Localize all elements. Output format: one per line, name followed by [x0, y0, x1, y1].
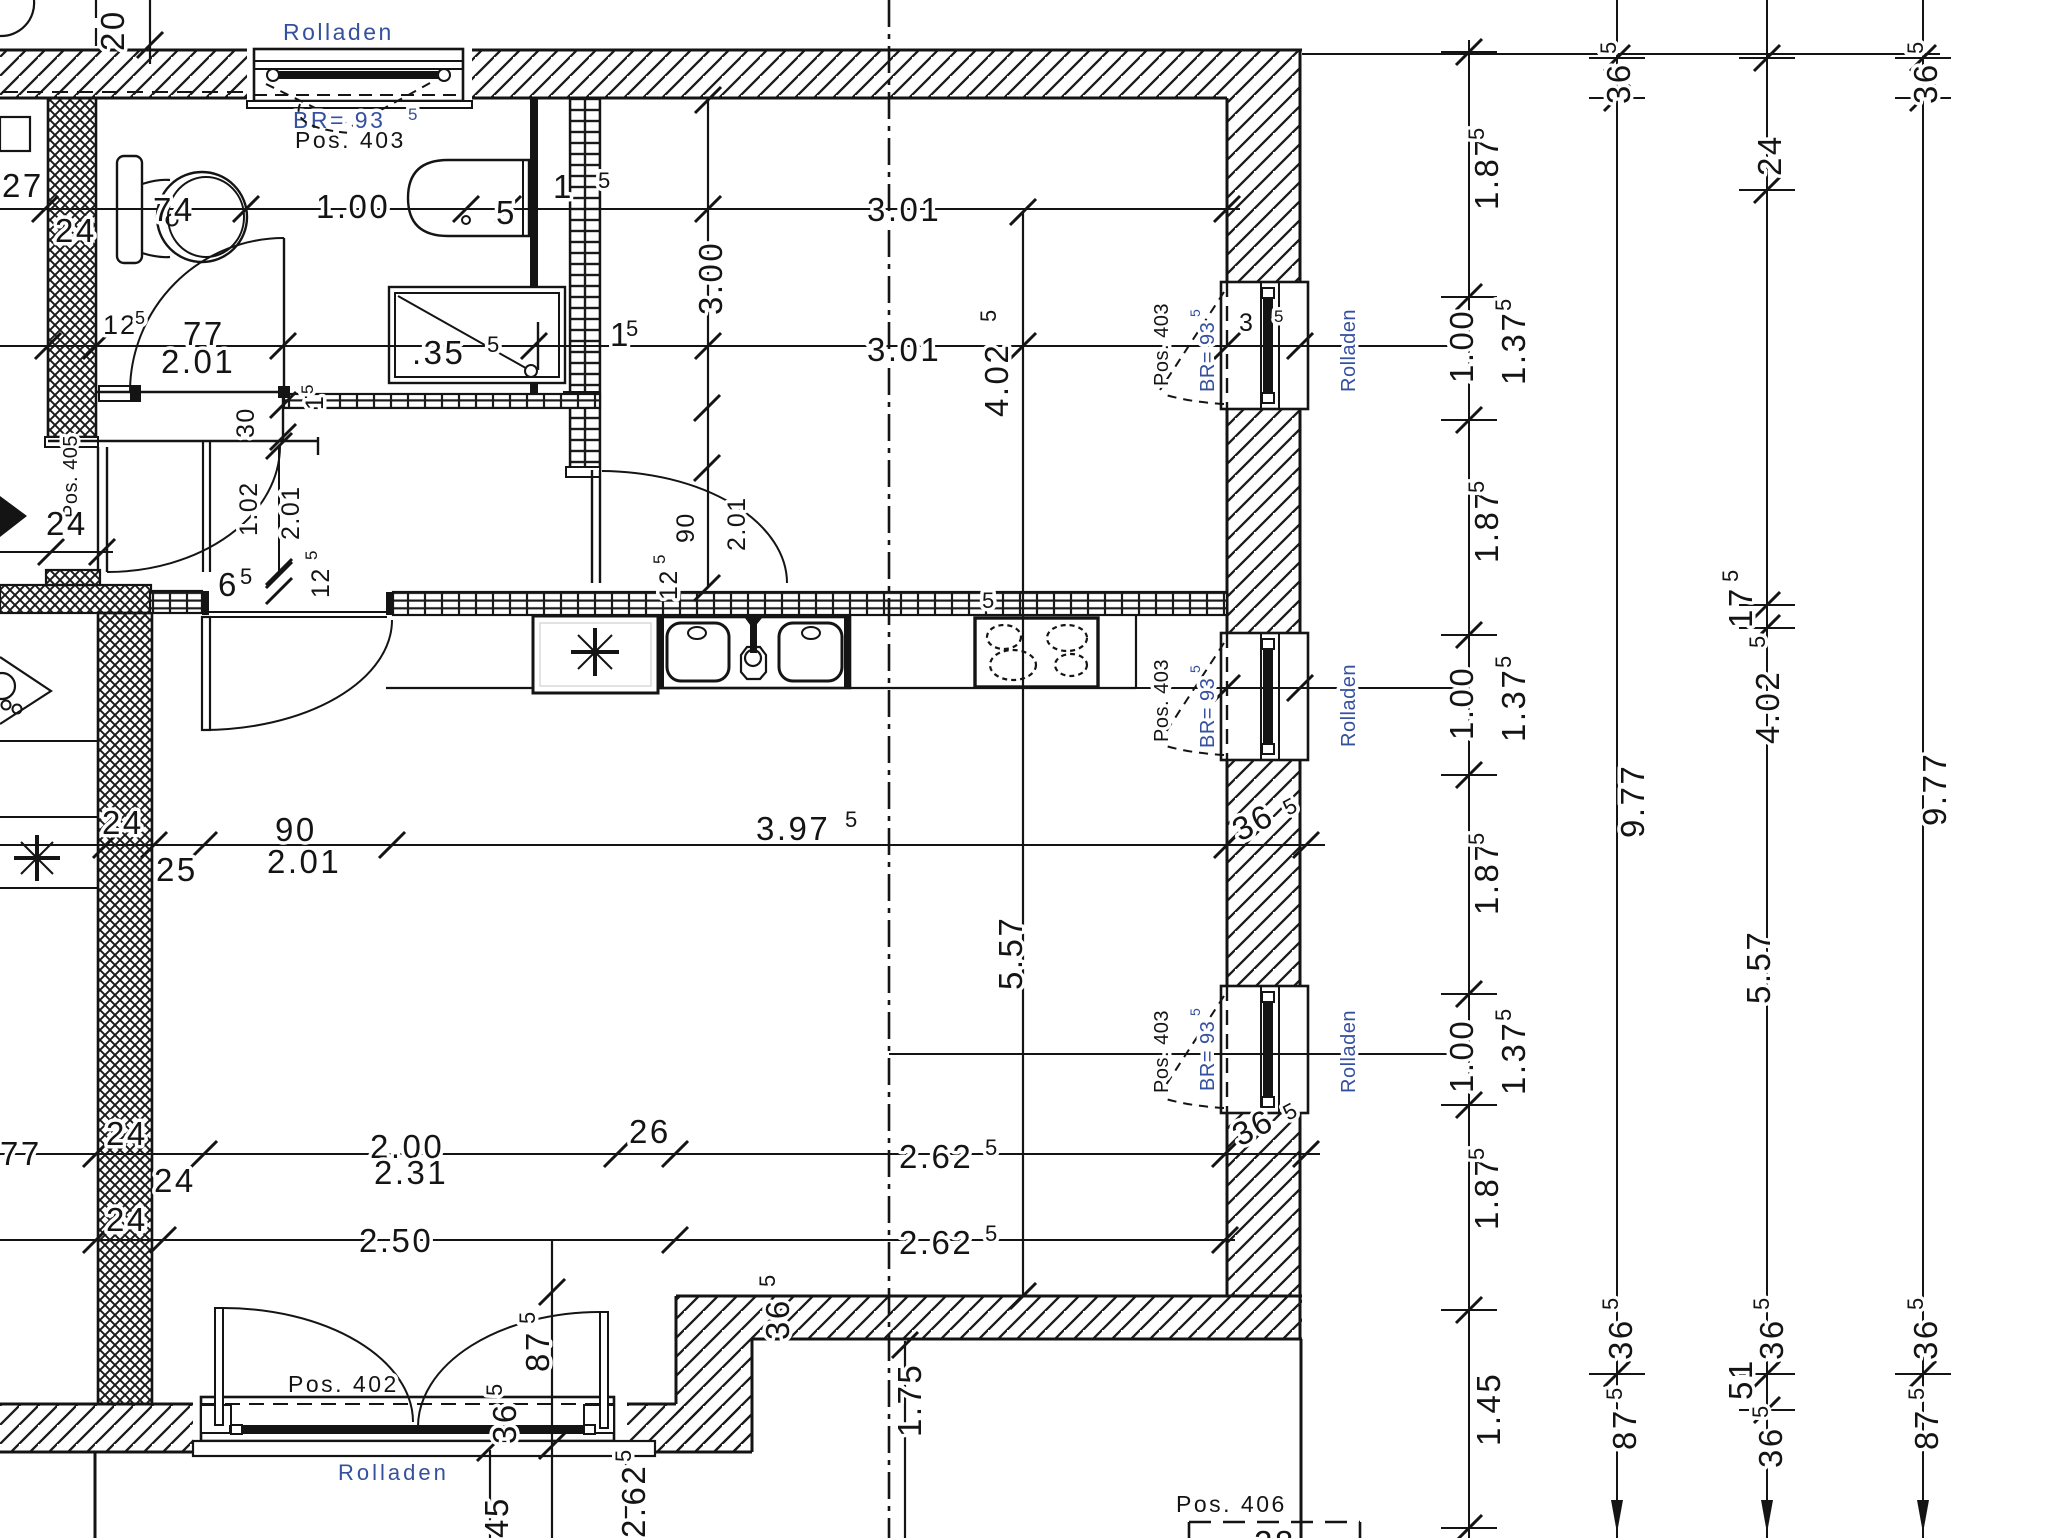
svg-text:24: 24 — [1751, 134, 1788, 176]
svg-text:5: 5 — [1187, 1008, 1203, 1016]
svg-text:5: 5 — [1491, 656, 1516, 668]
svg-text:5: 5 — [1598, 1298, 1623, 1310]
svg-text:36: 36 — [1600, 62, 1637, 104]
svg-text:4.02: 4.02 — [1749, 670, 1786, 744]
svg-text:1.87: 1.87 — [1468, 489, 1505, 563]
svg-text:5: 5 — [982, 588, 994, 613]
svg-text:2.62: 2.62 — [899, 1224, 973, 1261]
svg-text:2.01: 2.01 — [161, 343, 235, 380]
svg-text:77: 77 — [0, 1135, 42, 1172]
svg-text:9.77: 9.77 — [1614, 764, 1651, 838]
svg-text:24: 24 — [154, 1162, 196, 1199]
svg-text:74: 74 — [153, 191, 195, 228]
svg-text:1.87: 1.87 — [1468, 1156, 1505, 1230]
svg-text:5: 5 — [482, 1384, 507, 1396]
svg-text:2.31: 2.31 — [374, 1154, 448, 1191]
svg-text:4.02: 4.02 — [978, 343, 1015, 417]
svg-text:.35: .35 — [412, 334, 465, 371]
svg-text:36: 36 — [1907, 1318, 1944, 1360]
svg-text:BR= 93: BR= 93 — [1197, 322, 1219, 392]
svg-text:24: 24 — [102, 804, 144, 841]
svg-text:5: 5 — [1187, 665, 1203, 673]
svg-text:12: 12 — [307, 567, 335, 598]
svg-text:51: 51 — [1722, 1358, 1759, 1400]
svg-text:6: 6 — [218, 566, 239, 603]
svg-text:3.01: 3.01 — [867, 331, 941, 368]
svg-text:2.62: 2.62 — [615, 1464, 652, 1538]
svg-text:27: 27 — [2, 167, 44, 204]
svg-text:1.87: 1.87 — [1468, 136, 1505, 210]
svg-text:5: 5 — [1274, 307, 1283, 326]
svg-text:87: 87 — [1908, 1408, 1945, 1450]
svg-text:5: 5 — [1718, 570, 1743, 582]
svg-text:5: 5 — [487, 332, 499, 357]
svg-text:Rolladen: Rolladen — [1338, 309, 1360, 392]
svg-text:5: 5 — [1464, 481, 1489, 493]
svg-text:1.00: 1.00 — [1443, 309, 1480, 383]
svg-text:Rolladen: Rolladen — [283, 19, 394, 45]
svg-text:1.00: 1.00 — [1443, 1019, 1480, 1093]
svg-text:17: 17 — [1722, 586, 1759, 628]
svg-text:5: 5 — [1464, 833, 1489, 845]
svg-text:2.62: 2.62 — [899, 1138, 973, 1175]
svg-text:5.57: 5.57 — [1740, 930, 1777, 1004]
svg-text:Rolladen: Rolladen — [1338, 1010, 1360, 1093]
svg-text:BR= 93: BR= 93 — [1197, 1021, 1219, 1091]
svg-text:5: 5 — [1464, 1148, 1489, 1160]
svg-text:87: 87 — [1606, 1408, 1643, 1450]
svg-text:30: 30 — [232, 407, 260, 438]
svg-text:1.87: 1.87 — [1468, 841, 1505, 915]
svg-text:90: 90 — [672, 512, 700, 543]
svg-text:1.75: 1.75 — [891, 1363, 928, 1437]
svg-text:5: 5 — [976, 310, 1001, 322]
svg-text:36: 36 — [759, 1298, 796, 1340]
svg-text:24: 24 — [106, 1115, 148, 1152]
svg-text:1.37: 1.37 — [1495, 668, 1532, 742]
svg-text:45: 45 — [478, 1496, 515, 1538]
svg-text:2.01: 2.01 — [267, 843, 341, 880]
svg-text:5: 5 — [845, 807, 857, 832]
svg-text:Rolladen: Rolladen — [338, 1460, 449, 1485]
svg-text:24: 24 — [55, 212, 97, 249]
svg-text:1.37: 1.37 — [1495, 311, 1532, 385]
svg-text:24: 24 — [106, 1201, 148, 1238]
svg-text:87: 87 — [519, 1330, 556, 1372]
svg-text:Rolladen: Rolladen — [1338, 664, 1360, 747]
svg-text:5: 5 — [1749, 1298, 1774, 1310]
svg-text:5: 5 — [1464, 128, 1489, 140]
svg-text:36: 36 — [1907, 62, 1944, 104]
svg-text:5: 5 — [626, 316, 638, 341]
svg-text:2.01: 2.01 — [723, 496, 751, 551]
svg-text:5: 5 — [240, 564, 252, 589]
svg-text:Pos. 403: Pos. 403 — [1151, 1010, 1173, 1093]
svg-text:9.77: 9.77 — [1916, 752, 1953, 826]
svg-text:5: 5 — [1491, 1009, 1516, 1021]
svg-text:1: 1 — [553, 168, 574, 205]
svg-text:1.00: 1.00 — [1443, 666, 1480, 740]
svg-text:Pos. 402: Pos. 402 — [288, 1371, 399, 1397]
svg-text:1: 1 — [301, 395, 329, 410]
svg-text:3.00: 3.00 — [692, 241, 729, 315]
svg-text:5: 5 — [1596, 42, 1621, 54]
svg-text:24: 24 — [46, 505, 88, 542]
svg-text:3.01: 3.01 — [867, 191, 941, 228]
svg-text:5: 5 — [985, 1135, 997, 1160]
svg-text:5: 5 — [1187, 309, 1203, 317]
svg-text:1.00: 1.00 — [316, 188, 390, 225]
svg-text:12: 12 — [103, 310, 137, 340]
svg-text:26: 26 — [629, 1113, 671, 1150]
svg-text:36: 36 — [1602, 1318, 1639, 1360]
svg-text:36: 36 — [1752, 1426, 1789, 1468]
svg-text:5: 5 — [1903, 42, 1928, 54]
svg-text:12: 12 — [655, 569, 683, 600]
svg-text:5: 5 — [985, 1221, 997, 1246]
svg-text:5: 5 — [515, 1312, 540, 1324]
svg-text:5: 5 — [298, 385, 317, 394]
svg-text:1.37: 1.37 — [1495, 1021, 1532, 1095]
svg-text:Pos. 403: Pos. 403 — [295, 127, 406, 153]
svg-text:1.02: 1.02 — [235, 481, 263, 536]
svg-text:5: 5 — [1748, 1406, 1773, 1418]
svg-text:5: 5 — [1745, 636, 1770, 648]
svg-text:5: 5 — [598, 168, 610, 193]
svg-text:Pos. 403: Pos. 403 — [1151, 303, 1173, 386]
svg-text:Pos. 403: Pos. 403 — [1151, 659, 1173, 742]
svg-text:5: 5 — [611, 1450, 636, 1462]
svg-text:5: 5 — [650, 555, 669, 564]
svg-text:3: 3 — [1239, 309, 1254, 337]
svg-text:5: 5 — [496, 194, 517, 231]
svg-text:36: 36 — [486, 1402, 523, 1444]
svg-text:5: 5 — [755, 1275, 780, 1287]
svg-text:5: 5 — [135, 308, 145, 328]
svg-text:28: 28 — [1254, 1524, 1296, 1538]
svg-text:2.01: 2.01 — [277, 485, 305, 540]
svg-text:1.45: 1.45 — [1470, 1372, 1507, 1446]
svg-text:5: 5 — [1903, 1298, 1928, 1310]
svg-text:BR= 93: BR= 93 — [1197, 678, 1219, 748]
svg-text:20: 20 — [94, 9, 131, 51]
svg-text:3.97: 3.97 — [756, 810, 830, 847]
svg-text:Pos. 406: Pos. 406 — [1176, 1491, 1287, 1517]
svg-text:5: 5 — [1904, 1388, 1929, 1400]
svg-text:36: 36 — [1753, 1318, 1790, 1360]
svg-text:5: 5 — [1491, 299, 1516, 311]
svg-text:2.50: 2.50 — [359, 1222, 433, 1259]
svg-text:25: 25 — [156, 851, 198, 888]
svg-text:5: 5 — [408, 105, 417, 124]
svg-text:5: 5 — [302, 551, 321, 560]
svg-text:5.57: 5.57 — [992, 916, 1029, 990]
svg-text:5: 5 — [1602, 1388, 1627, 1400]
